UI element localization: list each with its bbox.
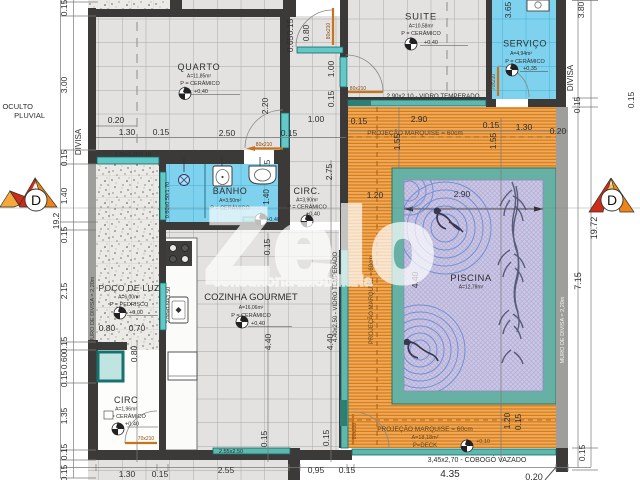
svg-text:POÇO DE LUZ: POÇO DE LUZ bbox=[99, 283, 160, 293]
svg-text:+0,40: +0,40 bbox=[251, 321, 265, 327]
svg-text:A=12,78m²: A=12,78m² bbox=[459, 285, 484, 291]
svg-text:1.30: 1.30 bbox=[119, 469, 136, 479]
svg-text:19.2: 19.2 bbox=[51, 212, 61, 229]
svg-text:0.15: 0.15 bbox=[281, 128, 298, 138]
svg-text:0.15: 0.15 bbox=[326, 90, 336, 107]
svg-text:0.60: 0.60 bbox=[59, 352, 69, 369]
svg-text:P = CERÂMICO: P = CERÂMICO bbox=[401, 30, 441, 37]
svg-text:0.15: 0.15 bbox=[259, 430, 269, 447]
svg-text:0.15: 0.15 bbox=[59, 443, 69, 460]
svg-text:P=DECK: P=DECK bbox=[413, 443, 437, 449]
svg-text:1.20: 1.20 bbox=[502, 412, 512, 429]
svg-text:+0,40: +0,40 bbox=[424, 40, 438, 46]
svg-text:0.15: 0.15 bbox=[152, 469, 169, 479]
svg-text:2.75: 2.75 bbox=[324, 163, 334, 180]
svg-text:0.80: 0.80 bbox=[129, 345, 139, 362]
svg-text:2.50: 2.50 bbox=[219, 128, 236, 138]
svg-text:4.40: 4.40 bbox=[263, 333, 273, 350]
svg-text:A=11,85m²: A=11,85m² bbox=[187, 74, 212, 80]
svg-text:1.30: 1.30 bbox=[119, 127, 136, 137]
svg-text:DIVISA: DIVISA bbox=[566, 64, 575, 91]
svg-text:A=10,58m²: A=10,58m² bbox=[409, 24, 434, 30]
svg-text:MURO DE DIVISA = 2,20m: MURO DE DIVISA = 2,20m bbox=[90, 276, 96, 343]
svg-text:A=16,06m²: A=16,06m² bbox=[239, 305, 264, 311]
svg-text:0.20: 0.20 bbox=[108, 115, 125, 125]
svg-text:1.00: 1.00 bbox=[326, 60, 336, 77]
svg-text:+0,10: +0,10 bbox=[476, 439, 490, 445]
svg-text:70x210: 70x210 bbox=[491, 74, 497, 91]
svg-text:1.30x1.20/1.10: 1.30x1.20/1.10 bbox=[115, 152, 151, 158]
svg-text:PLUVIAL: PLUVIAL bbox=[14, 111, 45, 120]
svg-text:0.15: 0.15 bbox=[59, 370, 69, 387]
svg-text:0.15: 0.15 bbox=[351, 116, 368, 126]
svg-text:+0,40: +0,40 bbox=[194, 89, 208, 95]
svg-text:80x210: 80x210 bbox=[350, 86, 367, 92]
svg-text:0,95: 0,95 bbox=[308, 465, 325, 475]
svg-text:80x210: 80x210 bbox=[326, 23, 332, 40]
svg-text:D: D bbox=[31, 192, 41, 208]
svg-text:0.15: 0.15 bbox=[59, 464, 69, 480]
svg-text:0.20: 0.20 bbox=[550, 126, 567, 136]
svg-text:0.15: 0.15 bbox=[321, 429, 331, 446]
svg-text:0.60x0.50/1.70: 0.60x0.50/1.70 bbox=[165, 182, 171, 218]
svg-text:3.00: 3.00 bbox=[59, 76, 69, 93]
svg-text:0.15: 0.15 bbox=[577, 444, 587, 461]
svg-text:0.15: 0.15 bbox=[153, 127, 170, 137]
svg-text:7.15: 7.15 bbox=[573, 272, 583, 290]
svg-text:MURO DE DIVISA = 2,20m: MURO DE DIVISA = 2,20m bbox=[560, 296, 566, 363]
svg-text:PROJEÇÃO MARQUISE = 60cm: PROJEÇÃO MARQUISE = 60cm bbox=[377, 424, 473, 433]
svg-text:A=1,96m²: A=1,96m² bbox=[115, 407, 137, 413]
svg-text:0.80: 0.80 bbox=[99, 323, 116, 333]
svg-text:PROJEÇÃO MARQUISE = 60cm: PROJEÇÃO MARQUISE = 60cm bbox=[367, 128, 463, 137]
svg-text:4.35: 4.35 bbox=[440, 469, 460, 480]
svg-text:SUITE: SUITE bbox=[405, 12, 437, 23]
svg-text:0.15: 0.15 bbox=[59, 0, 69, 16]
svg-text:QUARTO: QUARTO bbox=[178, 62, 221, 72]
svg-text:0.15: 0.15 bbox=[59, 336, 69, 353]
svg-text:+0,00: +0,00 bbox=[129, 310, 143, 316]
svg-text:P = PEDRISCO: P = PEDRISCO bbox=[110, 302, 149, 308]
svg-text:80x210: 80x210 bbox=[256, 142, 273, 148]
svg-text:0.15: 0.15 bbox=[59, 149, 69, 166]
svg-text:2.20: 2.20 bbox=[260, 97, 270, 114]
svg-text:0.15: 0.15 bbox=[285, 18, 295, 35]
svg-text:1.35: 1.35 bbox=[59, 407, 69, 424]
svg-text:DIVISA: DIVISA bbox=[74, 128, 83, 155]
svg-text:consultoria imobiliária: consultoria imobiliária bbox=[213, 274, 373, 290]
svg-text:3,45x2,70 - COBOGÓ VAZADO: 3,45x2,70 - COBOGÓ VAZADO bbox=[428, 455, 527, 464]
svg-text:1.55: 1.55 bbox=[488, 132, 498, 149]
svg-text:1.55: 1.55 bbox=[392, 133, 402, 150]
svg-text:80x210: 80x210 bbox=[352, 423, 358, 440]
svg-text:0.70: 0.70 bbox=[129, 323, 146, 333]
svg-text:0.15: 0.15 bbox=[339, 465, 356, 475]
svg-text:3.65: 3.65 bbox=[503, 1, 513, 18]
svg-text:+0,40: +0,40 bbox=[125, 422, 139, 428]
svg-text:0.15: 0.15 bbox=[572, 96, 582, 113]
svg-text:CIRC: CIRC bbox=[114, 395, 138, 405]
svg-text:A=6,00m²: A=6,00m² bbox=[118, 295, 140, 301]
svg-text:2.90x2.10 - VIDRO TEMPERADO: 2.90x2.10 - VIDRO TEMPERADO bbox=[386, 93, 479, 100]
svg-text:1.30: 1.30 bbox=[516, 122, 533, 132]
svg-text:2.15: 2.15 bbox=[59, 282, 69, 299]
svg-text:1.40: 1.40 bbox=[59, 187, 69, 204]
svg-text:2.90: 2.90 bbox=[411, 114, 428, 124]
svg-text:SERVIÇO: SERVIÇO bbox=[503, 39, 547, 49]
svg-text:A=18,18m²: A=18,18m² bbox=[411, 435, 438, 441]
svg-text:0.15: 0.15 bbox=[513, 413, 523, 430]
svg-text:2.55x2.50: 2.55x2.50 bbox=[219, 449, 243, 455]
svg-text:0,20: 0,20 bbox=[525, 472, 543, 480]
svg-text:2.55: 2.55 bbox=[218, 465, 235, 475]
svg-text:+0,35: +0,35 bbox=[523, 66, 537, 72]
svg-text:1.00: 1.00 bbox=[308, 114, 325, 124]
svg-text:D: D bbox=[607, 192, 617, 208]
svg-text:3.80: 3.80 bbox=[576, 1, 586, 18]
svg-text:19.72: 19.72 bbox=[589, 217, 599, 240]
svg-text:0.15: 0.15 bbox=[626, 91, 636, 108]
svg-text:OCULTO: OCULTO bbox=[2, 102, 33, 111]
svg-text:0.15: 0.15 bbox=[483, 120, 500, 130]
svg-text:P = CERÂMICO: P = CERÂMICO bbox=[180, 80, 220, 87]
svg-text:0.65: 0.65 bbox=[285, 35, 295, 52]
svg-text:0.80: 0.80 bbox=[301, 24, 311, 41]
svg-text:4.40: 4.40 bbox=[325, 333, 335, 350]
svg-text:A=4,94m²: A=4,94m² bbox=[510, 51, 532, 57]
svg-text:70x210: 70x210 bbox=[138, 436, 155, 442]
svg-text:PISCINA: PISCINA bbox=[450, 273, 492, 284]
